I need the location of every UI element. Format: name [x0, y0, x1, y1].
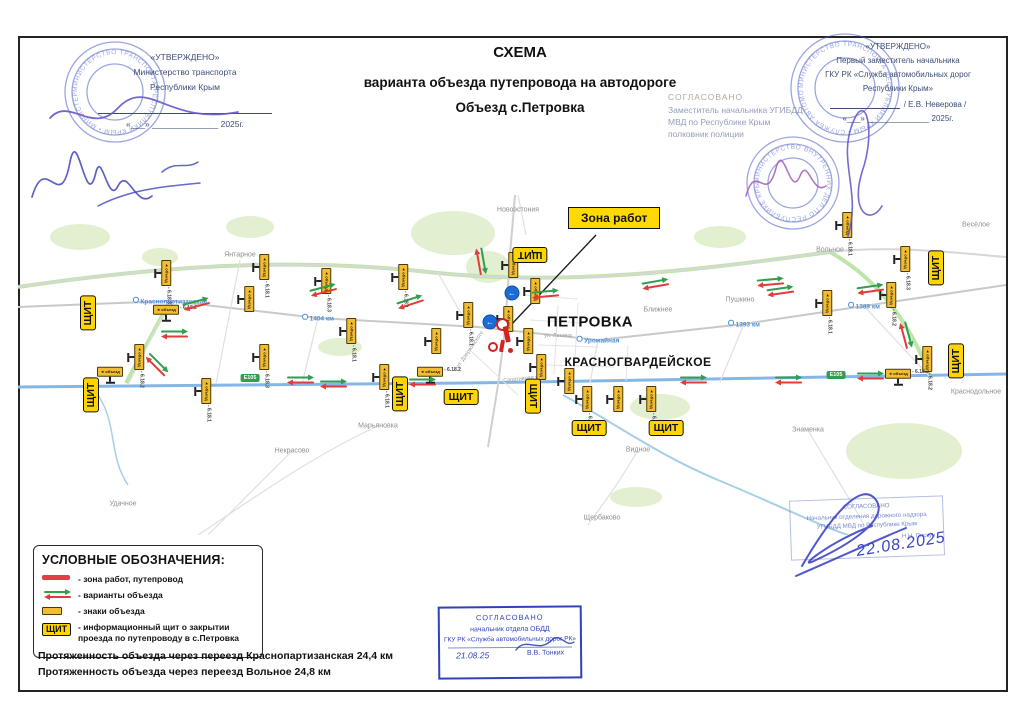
- sign-post: [837, 224, 842, 226]
- title-line2: варианта объезда путепровода на автодоро…: [300, 75, 740, 90]
- place-label: Щербаково: [584, 515, 621, 522]
- approval-right-signature-row: / Е.В. Неверова /: [798, 98, 998, 109]
- work-zone-wz-ring2: [488, 342, 498, 352]
- station-marker-icon: [302, 314, 308, 320]
- detour-road-sign: ◄ объезд- 6.18.2: [885, 369, 911, 386]
- approver-name: / Е.В. Неверова /: [904, 100, 967, 109]
- sign-post: [881, 294, 886, 296]
- detour-sign-plate: ◄ объезд: [646, 386, 656, 412]
- detour-direction-arrows: [318, 381, 348, 390]
- sign-post-base: [106, 382, 115, 384]
- sign-post: [196, 390, 201, 392]
- sign-code-label: - 6.18.1: [467, 329, 473, 346]
- sign-post-base: [894, 255, 896, 264]
- green-arrow: [480, 247, 486, 271]
- sign-post: [531, 366, 536, 368]
- sign-post: [559, 380, 564, 382]
- railway-station-label: 1393 км: [728, 320, 760, 329]
- sign-post-base: [253, 263, 255, 272]
- detour-sign-plate: ◄ объезд: [463, 302, 473, 328]
- place-label: Ближнее: [644, 307, 673, 314]
- detour-road-sign: ◄ объезд- 6.18.1: [340, 318, 357, 344]
- signature-line: [830, 98, 900, 109]
- bc-stamp-handwritten-date: 21.08.25: [456, 650, 489, 660]
- bc-stamp-line3: ГКУ РК «Служба автомобильных дорог РК»: [440, 635, 580, 643]
- sign-post: [393, 276, 398, 278]
- detour-map: НовоэстонияЯнтарноеВольноеВесёлоеПушкино…: [18, 195, 1006, 535]
- sign-post-base: [836, 221, 838, 230]
- detour-road-sign: ◄ объезд: [97, 367, 123, 384]
- sign-code-label: - 6.18.1: [263, 281, 269, 298]
- sign-code-label: - 6.18.1: [846, 239, 852, 256]
- red-arrow: [164, 336, 188, 338]
- detour-direction-arrows: [530, 289, 561, 301]
- detour-road-sign: ◄ объезд- 6.18.1: [373, 364, 390, 390]
- detour-sign-plate: ◄ объезд: [886, 282, 896, 308]
- sign-post: [341, 330, 346, 332]
- sign-post-base: [392, 273, 394, 282]
- detour-road-sign: ◄ объезд- 6.18.3: [253, 344, 270, 370]
- info-shield-badge: ЩИТ: [525, 379, 541, 414]
- red-arrow: [412, 384, 436, 386]
- red-arrow: [860, 378, 884, 380]
- sign-post-base: [128, 353, 130, 362]
- sign-code-label: - 6.18.1: [383, 391, 389, 408]
- red-arrow: [290, 382, 314, 384]
- detour-road-sign: ◄ объезд- 6.18.1: [836, 212, 853, 238]
- sign-post: [254, 356, 259, 358]
- sign-code-label: - 6.18.2: [890, 309, 896, 326]
- detour-sign-plate: ◄ объезд: [398, 264, 408, 290]
- place-label: Краснодольное: [951, 389, 1001, 396]
- sign-code-label: - 6.18.1: [826, 317, 832, 334]
- sign-code-label: - 6.18.2: [444, 367, 461, 373]
- station-marker-icon: [577, 336, 583, 342]
- detour-sign-plate: ◄ объезд: [346, 318, 356, 344]
- detour-road-sign: ◄ объезд- 6.18.2: [153, 305, 179, 322]
- red-arrow: [770, 291, 794, 297]
- sign-post: [129, 356, 134, 358]
- detour-sign-legend-icon: [42, 607, 62, 615]
- approval-right-line4: Республики Крым»: [798, 84, 998, 93]
- detour-road-sign: ◄ объезд- 6.18.1: [253, 254, 270, 280]
- detour-direction-arrows: [285, 377, 315, 386]
- info-shield-badge: ЩИТ: [948, 344, 964, 379]
- legend-workzone-label: - зона работ, путепровод: [78, 574, 183, 585]
- signature-line: [98, 97, 272, 114]
- detour-road-sign: ◄ объезд- 6.18.1: [457, 302, 474, 328]
- detour-direction-arrows: [897, 319, 913, 350]
- red-arrow: [760, 282, 784, 286]
- place-label: Янтарное: [224, 252, 256, 259]
- detour-direction-arrows: [473, 245, 487, 276]
- detour-sign-plate: ◄ объезд: [161, 260, 171, 286]
- detour-direction-arrows: [855, 373, 885, 382]
- detour-sign-plate: ◄ объезд: [201, 378, 211, 404]
- info-shield-badge: ЩИТ: [928, 251, 944, 286]
- gibdd-line4: полковник полиции: [668, 129, 843, 139]
- sign-post: [254, 266, 259, 268]
- road-number-badge: Е105: [827, 371, 846, 379]
- sign-post-base: [195, 387, 197, 396]
- town-label: КРАСНОГВАРДЕЙСКОЕ: [564, 355, 711, 369]
- info-shield-badge: ЩИТ: [83, 378, 99, 413]
- sign-post: [608, 398, 613, 400]
- detour-sign-plate: ◄ объезд: [613, 386, 623, 412]
- sign-post: [641, 398, 646, 400]
- detour-sign-plate: ◄ объезд: [822, 290, 832, 316]
- detour-direction-arrows: [639, 278, 670, 292]
- sign-code-label: - 6.18.2: [926, 373, 932, 390]
- work-zone-wz-dot: [508, 348, 513, 353]
- sign-post-base: [502, 261, 504, 270]
- detour-direction-arrows: [773, 377, 803, 386]
- detour-sign-plate: ◄ объезд: [379, 364, 389, 390]
- sign-post-base: [607, 395, 609, 404]
- approval-right-line3: ГКУ РК «Служба автомобильных дорог: [798, 70, 998, 79]
- sign-code-label: - 6.18.2: [138, 371, 144, 388]
- detour-sign-plate: ◄ объезд: [259, 344, 269, 370]
- sign-code-label: - 6.18.2: [912, 369, 929, 375]
- title-line1: СХЕМА: [300, 44, 740, 61]
- detour-direction-arrows: [307, 283, 338, 299]
- sign-post: [503, 264, 508, 266]
- red-arrow: [535, 294, 559, 298]
- sign-post-base: [530, 363, 532, 372]
- sign-post: [239, 298, 244, 300]
- info-shield-badge: ЩИТ: [513, 247, 548, 263]
- work-zone-callout: Зона работ: [568, 207, 660, 229]
- detour-road-sign: ◄ объезд- 6.18.1: [195, 378, 212, 404]
- sign-code-label: - 6.18.3: [904, 273, 910, 290]
- bc-stamp-name: В.В. Тонких: [527, 650, 564, 660]
- legend-shield-label: - информационный щит о закрытии проезда …: [78, 622, 239, 644]
- place-label: Новоэстония: [497, 207, 539, 214]
- detour-road-sign: ◄ объезд: [558, 368, 575, 394]
- info-shield-badge: ЩИТ: [649, 420, 684, 436]
- detour-sign-plate: ◄ объезд: [564, 368, 574, 394]
- approval-left-date: «___» ______________ 2025г.: [80, 119, 290, 129]
- approval-block-right: «УТВЕРЖДЕНО» Первый заместитель начальни…: [798, 42, 998, 128]
- workzone-legend-icon: [42, 575, 70, 580]
- approval-left-line2: Министерство транспорта: [80, 67, 290, 77]
- work-zone-wz-bar2: [499, 340, 505, 353]
- red-arrow: [683, 382, 707, 384]
- sign-post-base: [894, 384, 903, 386]
- footer-distances: Протяженность объезда через переезд Крас…: [38, 650, 393, 682]
- sign-post-base: [238, 295, 240, 304]
- detour-road-sign: ◄ объезд- 6.18.1: [392, 264, 409, 290]
- detour-road-sign: ◄ объезд- 6.18.3: [155, 260, 172, 286]
- sign-post-base: [816, 299, 818, 308]
- detour-road-sign: ◄ объезд: [238, 286, 255, 312]
- bc-stamp-sign-row: 21.08.25 В.В. Тонких: [448, 646, 572, 660]
- distance-line1: Протяженность объезда через переезд Крас…: [38, 650, 393, 662]
- legend-box: УСЛОВНЫЕ ОБОЗНАЧЕНИЯ: - зона работ, путе…: [33, 545, 263, 658]
- place-label: Весёлое: [962, 222, 990, 229]
- place-label: Пушкино: [726, 297, 755, 304]
- approval-right-line2: Первый заместитель начальника: [798, 56, 998, 65]
- detour-sign-plate: ◄ объезд: [97, 367, 123, 377]
- place-label: Знаменка: [792, 427, 824, 434]
- legend-title: УСЛОВНЫЕ ОБОЗНАЧЕНИЯ:: [42, 553, 254, 567]
- street-label: ул. Ленина: [544, 333, 572, 339]
- approval-left-line1: «УТВЕРЖДЕНО»: [80, 52, 290, 62]
- sign-post: [426, 340, 431, 342]
- legend-shield-label-line2: проезда по путепроводу в с.Петровка: [78, 633, 239, 643]
- detour-sign-plate: ◄ объезд: [842, 212, 852, 238]
- legend-detour-label: - варианты объезда: [78, 590, 163, 601]
- station-marker-icon: [133, 297, 139, 303]
- legend-shield-label-line1: - информационный щит о закрытии: [78, 622, 229, 632]
- place-label: Некрасово: [275, 448, 310, 455]
- sign-post-base: [916, 355, 918, 364]
- document-title: СХЕМА варианта объезда путепровода на ав…: [300, 44, 740, 115]
- railway-station-label: 1404 км: [302, 314, 334, 323]
- sign-code-label: - 6.18.1: [350, 345, 356, 362]
- detour-sign-plate: ◄ объезд: [259, 254, 269, 280]
- sign-code-label: - 6.18.3: [263, 371, 269, 388]
- sign-code-label: - 6.18.1: [205, 405, 211, 422]
- mandatory-direction-sign: ←: [505, 286, 520, 301]
- approval-block-left: «УТВЕРЖДЕНО» Министерство транспорта Рес…: [80, 52, 290, 134]
- railway-station-label: Урожайная: [577, 336, 620, 345]
- approval-right-line1: «УТВЕРЖДЕНО»: [798, 42, 998, 51]
- detour-road-sign: ◄ объезд- 6.18.3: [894, 246, 911, 272]
- detour-sign-plate: ◄ объезд: [431, 328, 441, 354]
- town-label: ПЕТРОВКА: [547, 314, 633, 331]
- shield-legend-icon: ЩИТ: [42, 623, 71, 636]
- station-marker-icon: [848, 302, 854, 308]
- sign-post: [577, 398, 582, 400]
- detour-sign-plate: ◄ объезд: [582, 386, 592, 412]
- detour-direction-arrows: [159, 331, 189, 340]
- sign-post-base: [524, 287, 526, 296]
- station-marker-icon: [728, 320, 734, 326]
- detour-sign-plate: ◄ объезд: [153, 305, 179, 315]
- detour-road-sign: ◄ объезд: [530, 354, 547, 380]
- place-label: Видное: [626, 447, 650, 454]
- place-label: Марьяновка: [358, 423, 398, 430]
- detour-sign-plate: ◄ объезд: [900, 246, 910, 272]
- sign-post-base: [162, 320, 171, 322]
- sign-post: [374, 376, 379, 378]
- detour-road-sign: ◄ объезд- 6.18.1: [576, 386, 593, 412]
- road-number-badge: Е105: [241, 374, 260, 382]
- detour-road-sign: ◄ объезд- 6.18.1: [640, 386, 657, 412]
- scanned-detour-scheme: МИНИСТЕРСТВО ТРАНСПОРТА РЕСПУБЛИКИ КРЫМ …: [0, 0, 1024, 724]
- red-arrow: [323, 386, 347, 388]
- sign-post: [817, 302, 822, 304]
- sign-post-base: [640, 395, 642, 404]
- red-arrow: [778, 382, 802, 384]
- sign-code-label: - 6.18.3: [165, 287, 171, 304]
- work-zone-markers: [486, 314, 526, 366]
- sign-post: [895, 258, 900, 260]
- detour-direction-arrows: [394, 294, 425, 312]
- place-label: Удачное: [109, 501, 136, 508]
- detour-road-sign: ◄ объезд: [425, 328, 442, 354]
- info-shield-badge: ЩИТ: [80, 296, 96, 331]
- bc-stamp-line1: СОГЛАСОВАНО: [440, 612, 580, 622]
- sign-post-base: [253, 353, 255, 362]
- sign-post: [458, 314, 463, 316]
- info-shield-badge: ЩИТ: [444, 389, 479, 405]
- title-line3: Объезд с.Петровка: [300, 100, 740, 115]
- railway-station-label: 1389 км: [848, 302, 880, 311]
- detour-sign-plate: ◄ объезд: [536, 354, 546, 380]
- red-arrow: [645, 283, 669, 289]
- approval-left-line3: Республики Крым: [80, 82, 290, 92]
- sign-post-base: [373, 373, 375, 382]
- sign-code-label: - 6.18.3: [325, 295, 331, 312]
- info-shield-badge: ЩИТ: [572, 420, 607, 436]
- legend-row-shield: ЩИТ - информационный щит о закрытии прое…: [42, 622, 254, 644]
- detour-direction-arrows: [407, 379, 437, 388]
- sign-post-base: [576, 395, 578, 404]
- sign-post: [917, 358, 922, 360]
- sign-post-base: [457, 311, 459, 320]
- sign-post: [156, 272, 161, 274]
- approval-right-date: «___» ______________ 2025г.: [798, 114, 998, 123]
- detour-sign-plate: ◄ объезд: [244, 286, 254, 312]
- sign-post-base: [315, 277, 317, 286]
- detour-legend-icon: [42, 591, 72, 600]
- legend-row-signs: - знаки объезда: [42, 606, 254, 617]
- sign-post-base: [340, 327, 342, 336]
- legend-row-workzone: - зона работ, путепровод: [42, 574, 254, 585]
- distance-line2: Протяженность объезда через переезд Воль…: [38, 666, 393, 678]
- detour-road-sign: ◄ объезд: [607, 386, 624, 412]
- info-shield-badge: ЩИТ: [392, 377, 408, 412]
- sign-post-base: [558, 377, 560, 386]
- detour-direction-arrows: [678, 377, 708, 386]
- detour-direction-arrows: [142, 351, 170, 379]
- bc-stamp-line2: начальник отдела ОБДД: [440, 625, 580, 633]
- sign-post-base: [155, 269, 157, 278]
- legend-signs-label: - знаки объезда: [78, 606, 145, 617]
- detour-road-sign: ◄ объезд- 6.18.1: [816, 290, 833, 316]
- agreement-stamp-bottom-center: СОГЛАСОВАНО начальник отдела ОБДД ГКУ РК…: [438, 605, 583, 679]
- legend-row-detour: - варианты объезда: [42, 590, 254, 601]
- map-items-layer: НовоэстонияЯнтарноеВольноеВесёлоеПушкино…: [18, 195, 1006, 535]
- detour-sign-plate: ◄ объезд: [885, 369, 911, 379]
- place-label: Вольное: [816, 247, 844, 254]
- sign-post-base: [425, 337, 427, 346]
- sign-post: [316, 280, 321, 282]
